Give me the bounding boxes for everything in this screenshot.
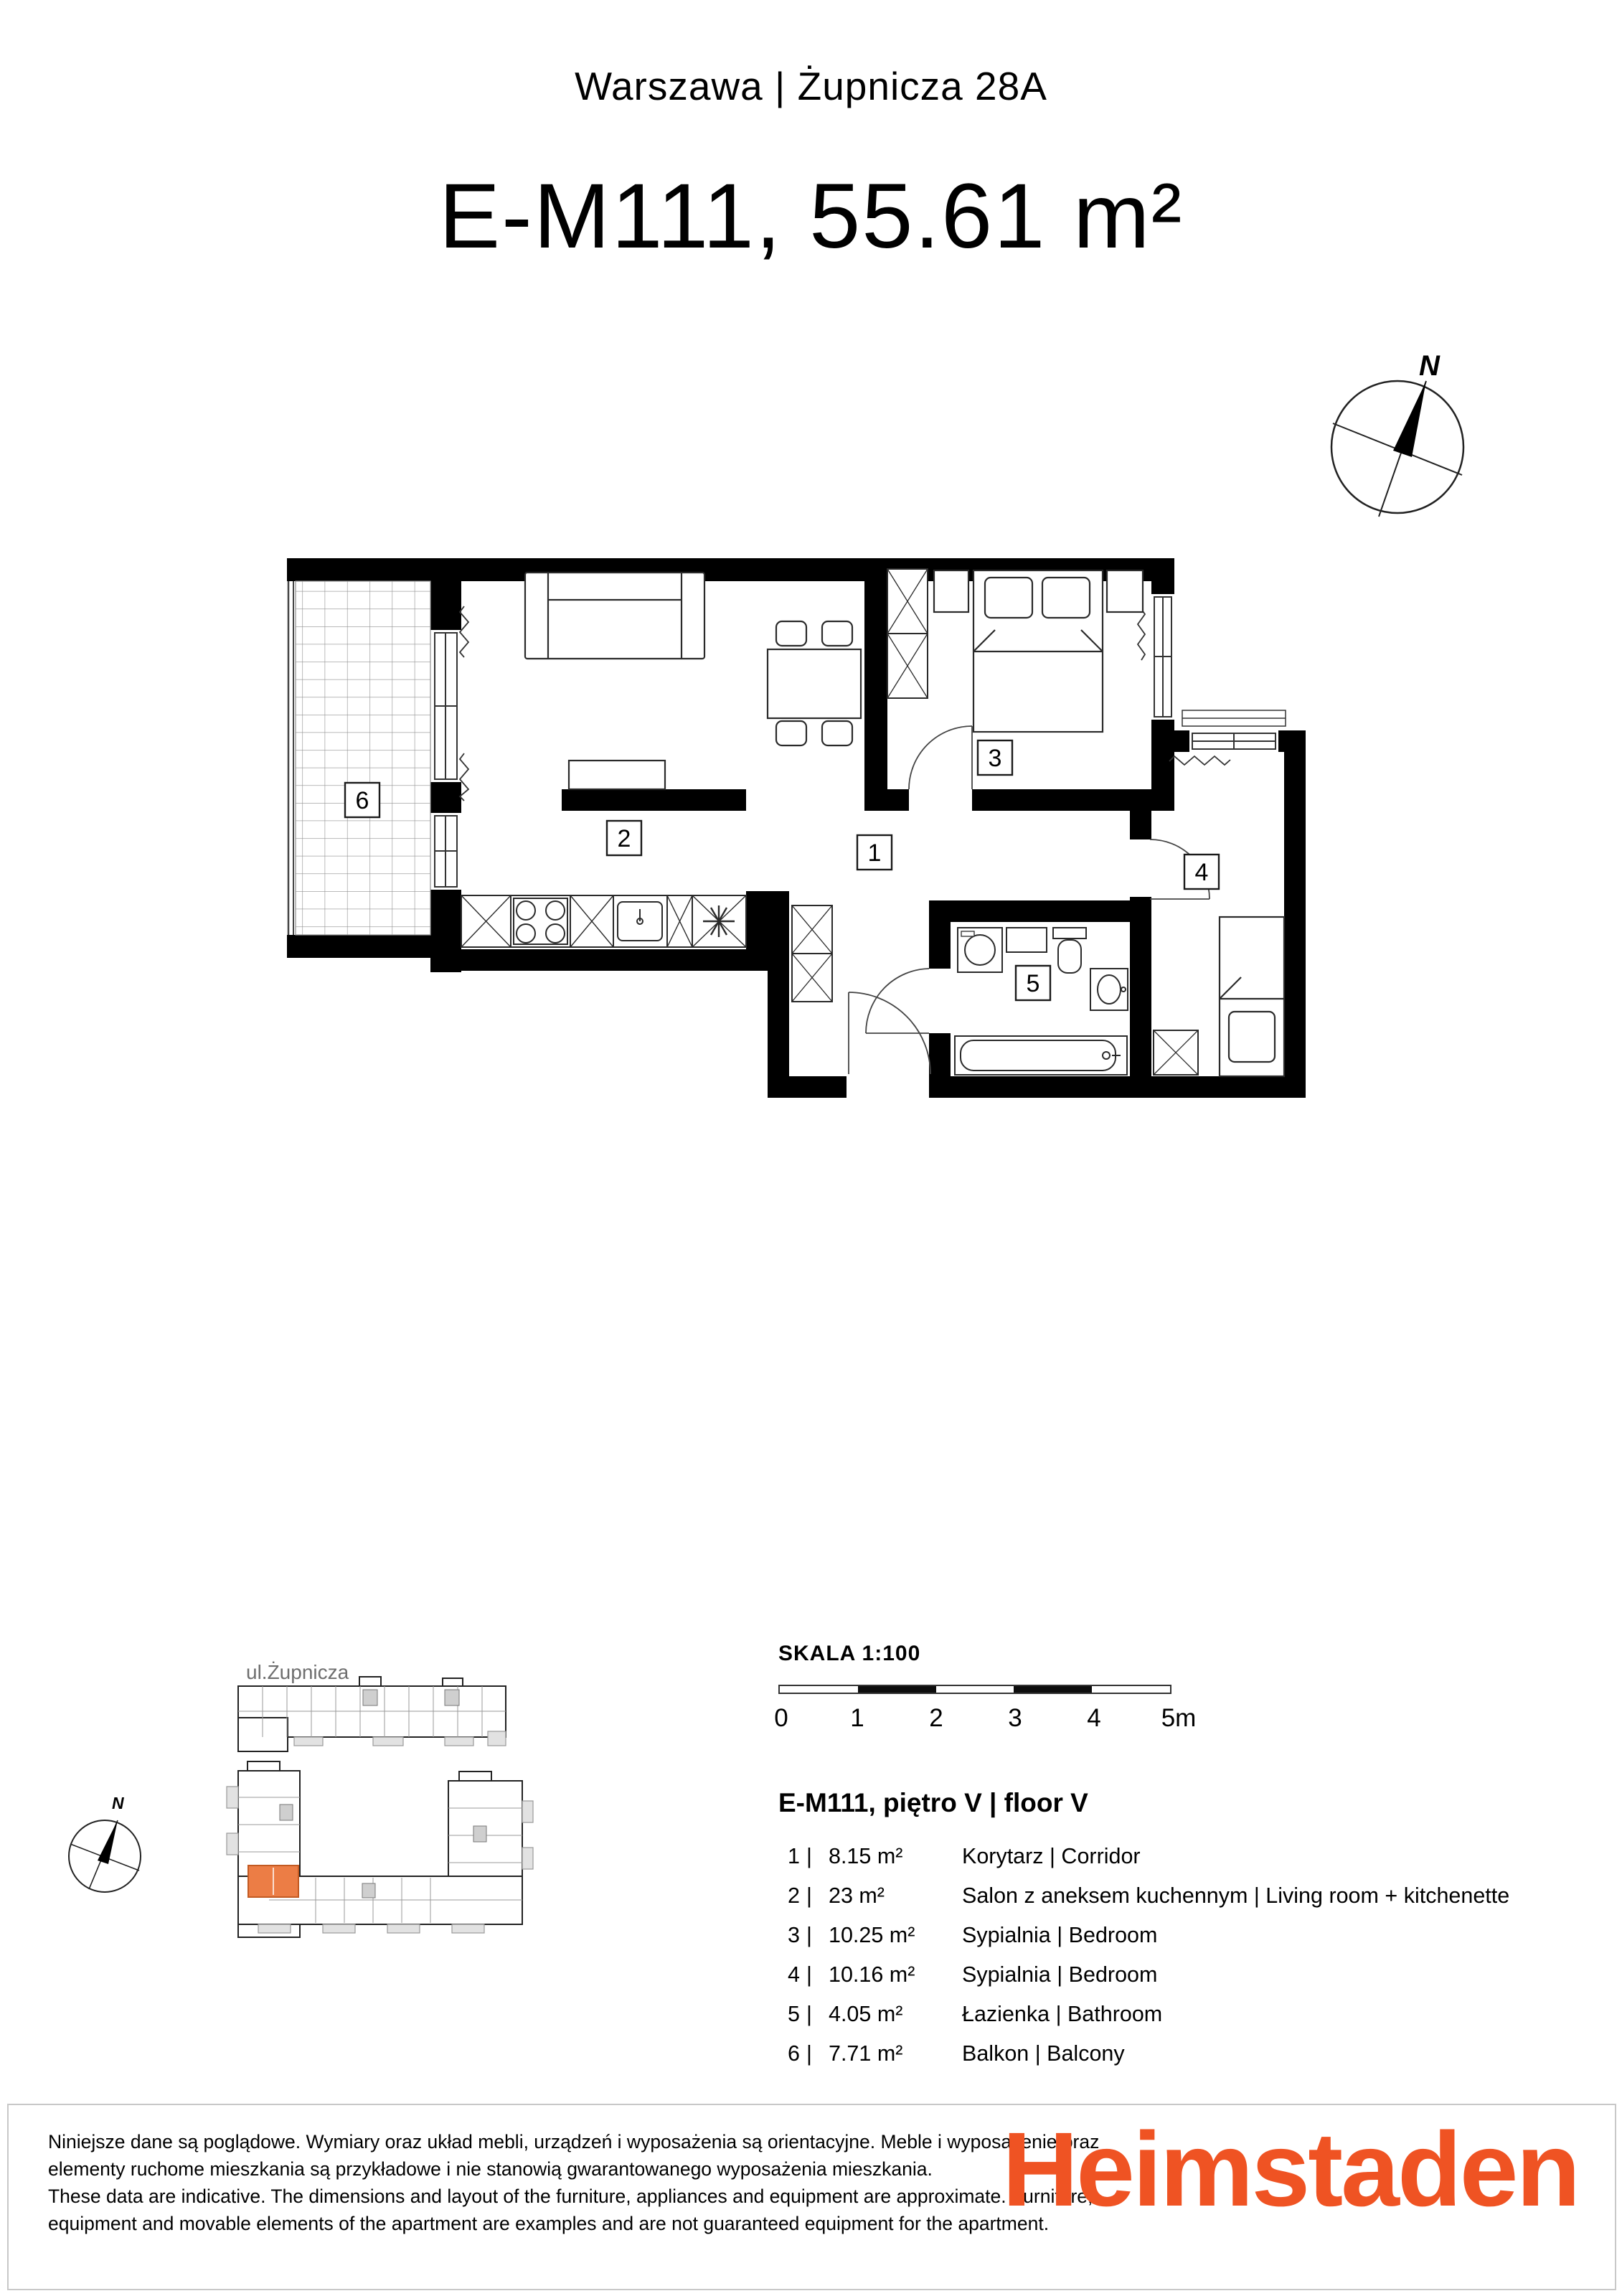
room-label-5: 5 bbox=[1016, 966, 1050, 1000]
legend-room-name: Balkon | Balcony bbox=[962, 2041, 1603, 2066]
room-label-3: 3 bbox=[978, 740, 1012, 775]
legend-room-number: 1 bbox=[778, 1844, 800, 1869]
entry-hall bbox=[792, 905, 930, 1098]
bedroom4-window-icon bbox=[1182, 710, 1286, 749]
legend-divider: | bbox=[800, 1923, 819, 1948]
washing-machine-icon bbox=[958, 928, 1002, 972]
footer: Niniejsze dane są poglądowe. Wymiary ora… bbox=[7, 2104, 1616, 2290]
svg-text:5: 5 bbox=[1027, 970, 1040, 997]
balcony-door-window-icon bbox=[435, 816, 457, 887]
room-label-4: 4 bbox=[1184, 855, 1219, 889]
toilet-icon bbox=[1053, 928, 1086, 973]
compass-needle bbox=[1393, 381, 1426, 457]
legend-row: 3 | 10.25 m² Sypialnia | Bedroom bbox=[778, 1923, 1603, 1962]
room-label-6: 6 bbox=[345, 783, 379, 817]
svg-text:3: 3 bbox=[989, 745, 1002, 772]
bedroom3-door-arc bbox=[909, 726, 972, 789]
svg-text:2: 2 bbox=[618, 825, 631, 852]
legend-row: 5 | 4.05 m² Łazienka | Bathroom bbox=[778, 2002, 1603, 2041]
pillow-icon bbox=[985, 578, 1032, 618]
legend-divider: | bbox=[800, 2002, 819, 2027]
building-south-u bbox=[227, 1761, 533, 1937]
legend-room-name: Sypialnia | Bedroom bbox=[962, 1923, 1603, 1948]
pillow-icon bbox=[1229, 1012, 1275, 1062]
legend-room-number: 4 bbox=[778, 1962, 800, 1987]
legend-row: 6 | 7.71 m² Balkon | Balcony bbox=[778, 2041, 1603, 2081]
street-label: ul.Żupnicza bbox=[246, 1661, 349, 1683]
dining-table bbox=[768, 621, 861, 745]
scale-tick: 5m bbox=[1161, 1704, 1197, 1733]
room-label-1: 1 bbox=[857, 835, 892, 870]
apartment-card-page: Warszawa | Żupnicza 28A E-M111, 55.61 m²… bbox=[0, 0, 1622, 2296]
legend-room-number: 5 bbox=[778, 2002, 800, 2027]
chair-icon bbox=[822, 621, 852, 646]
scale-segment bbox=[936, 1686, 1014, 1693]
bathroom-cabinet bbox=[1006, 928, 1047, 952]
kitchen-counter bbox=[461, 895, 746, 947]
scale-tick: 3 bbox=[1008, 1704, 1022, 1733]
bedroom3-window-icon bbox=[1154, 597, 1171, 717]
scale-title: SKALA 1:100 bbox=[778, 1642, 1223, 1666]
legend-row: 2 | 23 m² Salon z aneksem kuchennym | Li… bbox=[778, 1883, 1603, 1923]
page-title: E-M111, 55.61 m² bbox=[0, 164, 1622, 269]
chair-icon bbox=[822, 721, 852, 745]
legend-divider: | bbox=[800, 2041, 819, 2066]
disclaimer-line: equipment and movable elements of the ap… bbox=[48, 2210, 1099, 2237]
bedroom4-wardrobe bbox=[1154, 1030, 1198, 1075]
site-compass-icon: N bbox=[69, 1794, 141, 1892]
svg-text:4: 4 bbox=[1195, 859, 1209, 886]
scale-tick: 4 bbox=[1087, 1704, 1100, 1733]
svg-text:N: N bbox=[112, 1794, 124, 1812]
compass-icon: N bbox=[1313, 334, 1485, 563]
heimstaden-logo: Heimstaden bbox=[1002, 2109, 1578, 2231]
legend-room-area: 4.05 m² bbox=[819, 2002, 962, 2027]
legend-divider: | bbox=[800, 1962, 819, 1987]
scale-segment bbox=[780, 1686, 858, 1693]
legend-room-number: 3 bbox=[778, 1923, 800, 1948]
legend-room-number: 6 bbox=[778, 2041, 800, 2066]
bathtub-icon bbox=[955, 1036, 1127, 1075]
compass-north-label: N bbox=[1419, 350, 1441, 382]
balcony-tile-grid bbox=[296, 581, 430, 935]
legend-room-name: Salon z aneksem kuchennym | Living room … bbox=[962, 1883, 1603, 1909]
nightstand bbox=[934, 570, 968, 612]
scale-segment bbox=[858, 1686, 936, 1693]
legend-heading: E-M111, piętro V | floor V bbox=[778, 1788, 1603, 1818]
legend-room-area: 10.25 m² bbox=[819, 1923, 962, 1948]
legend-room-name: Łazienka | Bathroom bbox=[962, 2002, 1603, 2027]
disclaimer-text: Niniejsze dane są poglądowe. Wymiary ora… bbox=[48, 2128, 1099, 2237]
balcony-window-icon bbox=[435, 633, 457, 779]
bathroom bbox=[866, 928, 1128, 1075]
legend-room-area: 7.71 m² bbox=[819, 2041, 962, 2066]
svg-text:6: 6 bbox=[356, 787, 369, 814]
chair-icon bbox=[776, 721, 806, 745]
legend-row: 4 | 10.16 m² Sypialnia | Bedroom bbox=[778, 1962, 1603, 2002]
legend-room-number: 2 bbox=[778, 1883, 800, 1909]
scale-block: SKALA 1:100 0 1 2 3 4 5m bbox=[778, 1642, 1223, 1733]
bedroom3-bed bbox=[934, 570, 1143, 732]
scale-bar bbox=[778, 1685, 1171, 1694]
pillow-icon bbox=[1042, 578, 1090, 618]
building-north bbox=[238, 1677, 506, 1751]
svg-text:1: 1 bbox=[868, 839, 882, 867]
scale-tick: 2 bbox=[929, 1704, 943, 1733]
nightstand bbox=[1107, 570, 1143, 612]
legend-divider: | bbox=[800, 1844, 819, 1869]
disclaimer-line: These data are indicative. The dimension… bbox=[48, 2183, 1099, 2210]
balcony bbox=[288, 581, 430, 935]
site-map: ul.Żupnicza N bbox=[43, 1625, 545, 1955]
scale-tick: 1 bbox=[850, 1704, 864, 1733]
legend-room-name: Sypialnia | Bedroom bbox=[962, 1962, 1603, 1987]
chair-icon bbox=[776, 621, 806, 646]
legend-room-area: 8.15 m² bbox=[819, 1844, 962, 1869]
scale-tick: 0 bbox=[774, 1704, 788, 1733]
bathroom-door-arc bbox=[866, 969, 929, 1033]
floor-plan: 6 2 1 3 4 5 bbox=[280, 538, 1306, 1098]
bedroom3-wardrobe bbox=[887, 569, 928, 698]
legend-divider: | bbox=[800, 1883, 819, 1909]
room-legend: E-M111, piętro V | floor V 1 | 8.15 m² K… bbox=[778, 1788, 1603, 2081]
address-subtitle: Warszawa | Żupnicza 28A bbox=[0, 63, 1622, 109]
room-label-2: 2 bbox=[607, 821, 641, 855]
bedroom4-bed bbox=[1220, 917, 1284, 1076]
entry-wardrobe bbox=[792, 905, 832, 1002]
disclaimer-line: elementy ruchome mieszkania są przykłado… bbox=[48, 2155, 1099, 2183]
legend-room-area: 23 m² bbox=[819, 1883, 962, 1909]
scale-segment bbox=[1014, 1686, 1092, 1693]
legend-room-name: Korytarz | Corridor bbox=[962, 1844, 1603, 1869]
legend-room-area: 10.16 m² bbox=[819, 1962, 962, 1987]
legend-row: 1 | 8.15 m² Korytarz | Corridor bbox=[778, 1844, 1603, 1883]
disclaimer-line: Niniejsze dane są poglądowe. Wymiary ora… bbox=[48, 2128, 1099, 2155]
scale-ticks: 0 1 2 3 4 5m bbox=[778, 1704, 1223, 1733]
sink-basin-icon bbox=[1090, 969, 1128, 1010]
tv-cabinet bbox=[569, 761, 665, 789]
scale-segment bbox=[1092, 1686, 1170, 1693]
sofa bbox=[525, 573, 704, 659]
